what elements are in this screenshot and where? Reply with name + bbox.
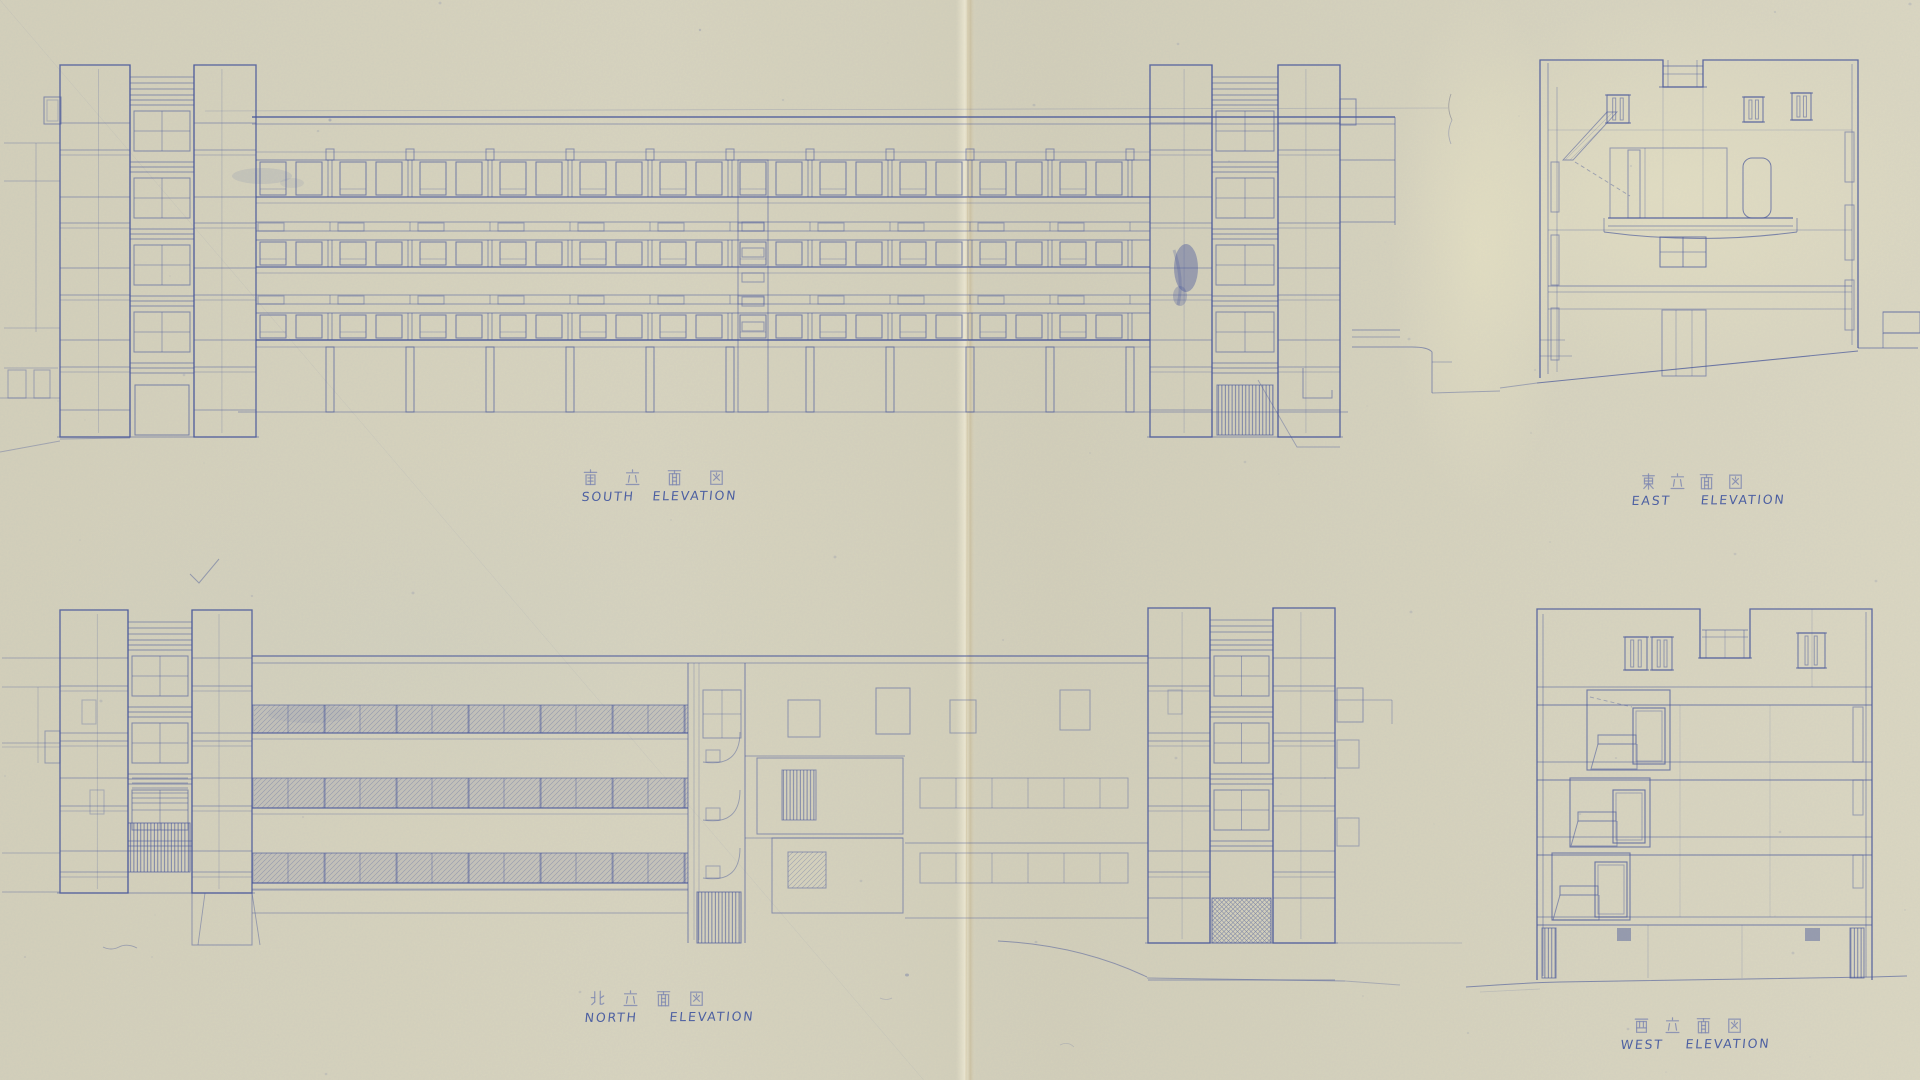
kanji-char xyxy=(583,469,598,486)
kanji-char xyxy=(1728,473,1743,490)
south-elevation-kanji xyxy=(583,469,737,486)
kanji-char xyxy=(1641,473,1656,490)
north-elevation-kanji xyxy=(590,990,754,1007)
kanji-char xyxy=(689,990,704,1007)
north-elevation-label: NORTH ELEVATION xyxy=(584,990,754,1025)
west-elevation-label: WEST ELEVATION xyxy=(1620,1017,1770,1052)
kanji-char xyxy=(1699,473,1714,490)
south-elevation-label: SOUTH ELEVATION xyxy=(581,469,737,504)
south-elevation-title: SOUTH ELEVATION xyxy=(581,488,738,504)
kanji-char xyxy=(1634,1017,1649,1034)
kanji-char xyxy=(667,469,682,486)
east-elevation-kanji xyxy=(1641,473,1785,490)
kanji-char xyxy=(1727,1017,1742,1034)
blueprint-sheet: SOUTH ELEVATION EAST ELEVATION NORTH ELE… xyxy=(0,0,1920,1080)
kanji-char xyxy=(1670,473,1685,490)
kanji-char xyxy=(709,469,724,486)
west-elevation-kanji xyxy=(1634,1017,1770,1034)
east-elevation-title: EAST ELEVATION xyxy=(1631,492,1786,508)
kanji-char xyxy=(1665,1017,1680,1034)
kanji-char xyxy=(625,469,640,486)
kanji-char xyxy=(1696,1017,1711,1034)
north-elevation-title: NORTH ELEVATION xyxy=(584,1009,755,1025)
kanji-char xyxy=(656,990,671,1007)
blueprint-drawing xyxy=(0,0,1920,1080)
kanji-char xyxy=(590,990,605,1007)
west-elevation-title: WEST ELEVATION xyxy=(1620,1036,1771,1052)
kanji-char xyxy=(623,990,638,1007)
paper-grain-overlay xyxy=(0,0,1920,1080)
east-elevation-label: EAST ELEVATION xyxy=(1631,473,1785,508)
